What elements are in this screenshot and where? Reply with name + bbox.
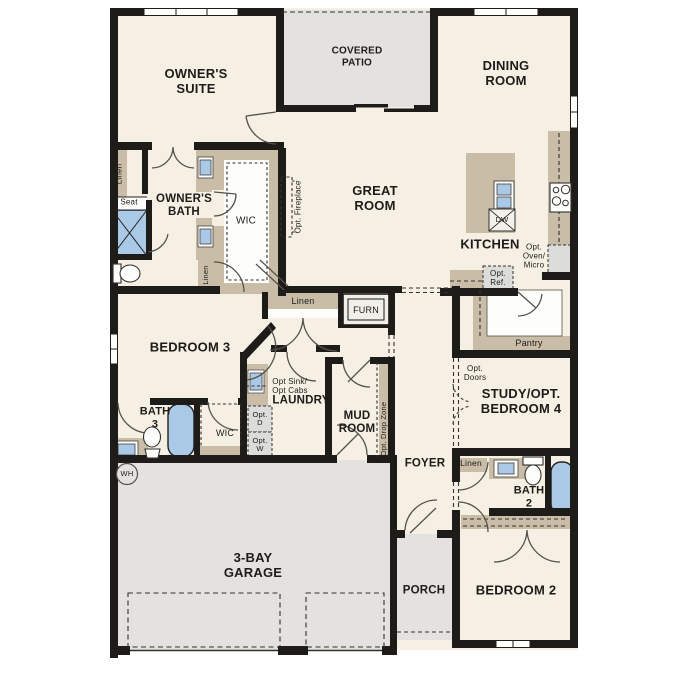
room-label-mud-room: MUD ROOM — [339, 410, 376, 436]
bedroom2-closet-shelf — [461, 515, 570, 529]
label-linen-small: Linen — [202, 265, 210, 284]
label-opt-drop-zone: Opt. Drop Zone — [380, 402, 388, 457]
bath3-sink — [118, 444, 135, 455]
island-sink — [497, 184, 511, 195]
cooktop — [550, 183, 571, 212]
room-label-owners-suite: OWNER'S SUITE — [165, 67, 228, 97]
room-label-foyer: FOYER — [405, 457, 446, 470]
floorplan-page: OWNER'S SUITE COVERED PATIO DINING ROOM … — [0, 0, 687, 687]
label-opt-sink-cabs: Opt Sink/ Opt Cabs — [272, 378, 307, 396]
label-seat: Seat — [120, 199, 137, 208]
room-label-bedroom2: BEDROOM 2 — [476, 584, 557, 599]
room-label-covered-patio: COVERED PATIO — [332, 46, 383, 69]
owner-sink-1 — [200, 160, 211, 175]
label-furn: FURN — [353, 305, 379, 315]
label-opt-washer: Opt. W — [253, 437, 268, 454]
bath3-tub — [168, 404, 194, 457]
room-label-dining-room: DINING ROOM — [483, 59, 530, 89]
label-opt-oven-micro: Opt. Oven/ Micro — [523, 244, 545, 271]
room-label-garage: 3-BAY GARAGE — [224, 551, 282, 581]
room-label-bath3: BATH 3 — [140, 405, 171, 430]
label-linen-b2: Linen — [460, 459, 482, 469]
label-opt-fireplace: Opt. Fireplace — [295, 180, 304, 233]
wic2-shelf — [196, 446, 245, 456]
room-label-porch: PORCH — [403, 584, 446, 597]
floorplan-drawing — [0, 0, 687, 687]
label-linen-hall: Linen — [291, 296, 314, 306]
room-label-study: STUDY/OPT. BEDROOM 4 — [481, 387, 562, 417]
room-label-owners-bath: OWNER'S BATH — [156, 193, 212, 219]
owner-sink-2 — [200, 229, 211, 244]
room-label-great-room: GREAT ROOM — [352, 184, 398, 214]
owner-toilet — [120, 265, 140, 282]
bath2-tub — [551, 462, 573, 514]
opt-oven-micro-box — [548, 245, 571, 273]
label-water-heater: WH — [121, 470, 134, 478]
room-label-bedroom3: BEDROOM 3 — [150, 341, 231, 356]
label-wic-owner: WIC — [236, 215, 256, 227]
label-opt-doors: Opt. Doors — [464, 365, 486, 383]
bath2-toilet — [525, 465, 541, 485]
room-label-kitchen: KITCHEN — [460, 238, 519, 253]
label-opt-ref: Opt. Ref. — [490, 270, 506, 288]
room-label-bath2: BATH 2 — [514, 484, 545, 509]
label-linen-owner: Linen — [116, 164, 125, 185]
room-label-laundry: LAUNDRY — [272, 394, 329, 407]
label-opt-dryer: Opt. D — [253, 411, 268, 428]
label-wic-b3: WIC — [216, 428, 234, 438]
bath2-sink — [498, 463, 514, 474]
label-dishwasher: DW — [496, 216, 509, 224]
label-pantry: Pantry — [515, 338, 542, 348]
